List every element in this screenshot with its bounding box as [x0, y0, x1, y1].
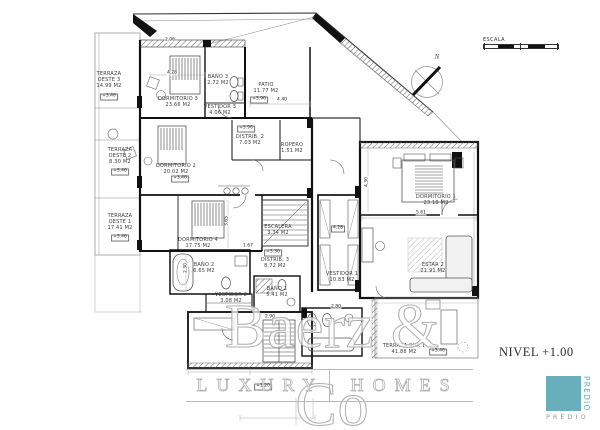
level-marker: +3.30 [264, 250, 282, 257]
plan-labels-layer: TERRAZA OESTE 3 14.99 M2 +3.46 TERRAZA O… [0, 0, 600, 430]
dimension-label: 2.30 [184, 262, 189, 273]
room-label-terraza-oeste-1: TERRAZA OESTE 1 17.41 M2 [108, 213, 133, 231]
dimension-label: 4.30 [365, 176, 370, 187]
room-label-dormitorio-4: DORMITORIO 4 17.75 M2 [178, 237, 218, 249]
level-title: NIVEL +1.00 [499, 345, 574, 360]
room-label-ropero: ROPERO 1.51 M2 [281, 142, 303, 154]
room-label-distrib-2: DISTRIB. 2 7.03 M2 [236, 134, 264, 146]
room-label-dormitorio-2: DORMITORIO 2 20.02 M2 [156, 163, 196, 175]
room-label-dormitorio-1: DORMITORIO 1 23.18 M2 [416, 194, 456, 206]
north-label: N [435, 53, 440, 61]
room-label-patio: PATIO 11.77 M2 [254, 82, 279, 94]
room-label-escalera: ESCALERA 3.34 M2 [264, 224, 291, 236]
dimension-label: 3.65 [225, 215, 230, 226]
dimension-label: 4.28 [331, 226, 345, 233]
dimension-label: 2.80 [330, 305, 341, 310]
room-label-dormitorio-3: DORMITORIO 3 23.66 M2 [158, 96, 198, 108]
level-marker: +3.96 [250, 97, 268, 104]
dimension-label: 1.67 [242, 244, 253, 249]
room-label-distrib-3: DISTRIB. 3 8.72 M2 [261, 257, 289, 269]
predio-logo-caption: PREDIO [546, 413, 581, 421]
level-marker: +3.96 [237, 126, 255, 133]
predio-logo: PREDIO PREDIO [546, 376, 594, 421]
room-label-bano-1: BAÑO 1 5.41 M2 [266, 286, 288, 298]
room-label-bano-2: BAÑO 2 6.65 M2 [193, 262, 215, 274]
level-marker: +3.46 [429, 349, 447, 356]
room-label-terraza-sur-1: TERRAZA SUR 1 41.88 M2 [383, 343, 426, 355]
scale-bar-graphic [483, 44, 559, 49]
dimension-label: 2.06 [164, 38, 175, 43]
dimension-label: 2.90 [264, 315, 275, 320]
room-label-estar-2: ESTAR 2 21.91 M2 [421, 262, 446, 274]
room-label-vestidor-1: VESTIDOR 1 10.83 M2 [326, 271, 358, 283]
level-marker: +3.46 [111, 169, 129, 176]
room-label-vestidor-3: VESTIDOR 3 4.06 M2 [204, 104, 236, 116]
dimension-label: 4.28 [166, 71, 177, 76]
level-marker: +3.46 [171, 176, 189, 183]
room-label-terraza-oeste-3: TERRAZA OESTE 3 14.99 M2 [97, 71, 122, 89]
level-marker: +1.20 [254, 384, 272, 391]
room-label-terraza-oeste-2: TERRAZA OESTE 2 8.30 M2 [108, 147, 133, 165]
scale-label: ESCALA [483, 37, 559, 43]
predio-logo-vertical-text: PREDIO [582, 376, 591, 412]
dimension-label: 4.40 [276, 98, 287, 103]
room-label-vestidor-2: VESTIDOR 2 3.08 M2 [215, 292, 247, 304]
room-label-bano-3: BAÑO 3 2.72 M2 [207, 74, 229, 86]
level-marker: +3.46 [100, 94, 118, 101]
scale-bar: ESCALA [483, 37, 559, 49]
predio-logo-square [546, 376, 581, 411]
dimension-label: 5.61 [415, 211, 426, 216]
floor-plan-page: TERRAZA OESTE 3 14.99 M2 +3.46 TERRAZA O… [0, 0, 600, 430]
level-marker: +3.46 [111, 235, 129, 242]
